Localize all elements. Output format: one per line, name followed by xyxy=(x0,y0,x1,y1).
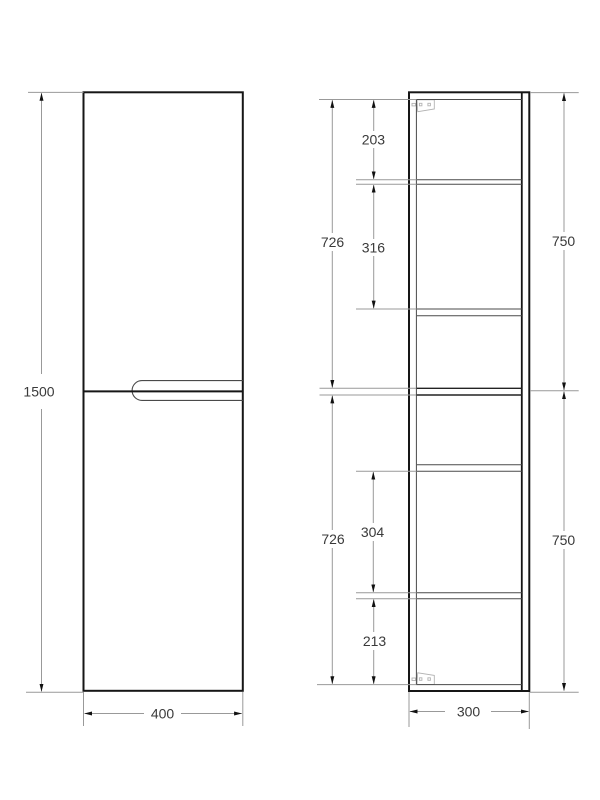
svg-text:316: 316 xyxy=(362,240,386,256)
svg-text:300: 300 xyxy=(457,704,481,720)
svg-text:304: 304 xyxy=(361,524,385,540)
svg-text:726: 726 xyxy=(321,531,345,547)
svg-text:726: 726 xyxy=(321,234,345,250)
svg-text:213: 213 xyxy=(363,633,387,649)
svg-text:400: 400 xyxy=(151,706,175,722)
svg-text:1500: 1500 xyxy=(23,384,54,400)
svg-text:750: 750 xyxy=(552,532,576,548)
svg-text:750: 750 xyxy=(552,233,576,249)
svg-text:203: 203 xyxy=(362,131,386,147)
